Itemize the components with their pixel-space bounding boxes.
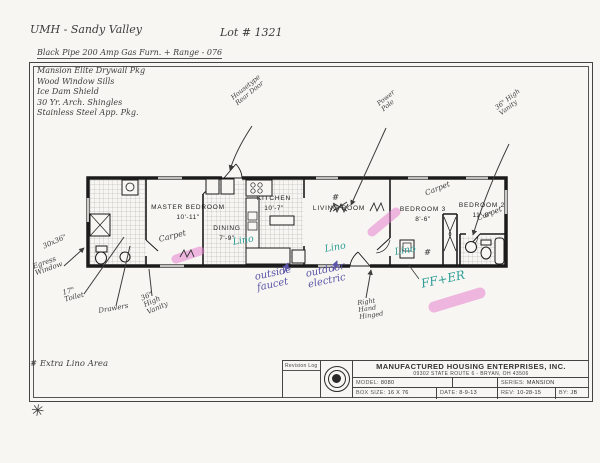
company-name: MANUFACTURED HOUSING ENTERPRISES, INC.: [353, 362, 589, 371]
room-label-kitchen: KITCHEN 10'-7": [248, 194, 300, 214]
community-note: UMH - Sandy Valley: [30, 24, 142, 36]
box-size-label: BOX SIZE:: [356, 390, 386, 396]
spec-item-shingles: 30 Yr. Arch. Shingles: [37, 99, 122, 107]
mhe-logo-core: [332, 374, 341, 383]
room-label-bedroom-3: BEDROOM 3 8'-6": [398, 205, 448, 225]
by-cell: BY:JB: [556, 388, 589, 399]
spec-item-appliance-pkg: Stainless Steel App. Pkg.: [37, 109, 139, 117]
room-size: 8'-6": [398, 215, 448, 225]
title-block: Revision Log MANUFACTURED HOUSING ENTERP…: [282, 360, 589, 398]
extra-lino-area-note: # Extra Lino Area: [30, 360, 108, 369]
date-cell: DATE:8-9-13: [437, 388, 498, 399]
title-block-row-date: BOX SIZE:16 X 76 DATE:8-9-13 REV:10-28-1…: [353, 387, 589, 399]
room-name: MASTER BEDROOM: [146, 203, 230, 213]
room-label-living-room: LIVING ROOM: [308, 204, 370, 214]
box-size-value: 16 X 76: [388, 390, 409, 396]
date-label: DATE:: [440, 390, 457, 396]
spec-item-window-sills: Wood Window Sills: [37, 78, 114, 86]
spec-item-ice-dam: Ice Dam Shield: [37, 88, 99, 96]
mhe-logo-inner-ring: [328, 370, 346, 388]
series-value: MANSION: [527, 380, 555, 386]
lot-number-note: Lot # 1321: [220, 27, 283, 39]
room-size: 10'-11": [146, 213, 230, 223]
room-label-master-bedroom: MASTER BEDROOM 10'-11": [146, 203, 230, 223]
room-name: LIVING ROOM: [308, 204, 370, 214]
series-label: SERIES:: [501, 380, 525, 386]
spec-item-drywall: Mansion Elite Drywall Pkg: [37, 67, 145, 75]
model-value: 8080: [381, 380, 394, 386]
title-block-main: MANUFACTURED HOUSING ENTERPRISES, INC. 0…: [353, 361, 589, 398]
room-name: BEDROOM 3: [398, 205, 448, 215]
rev-cell: REV:10-28-15: [498, 388, 556, 399]
by-label: BY:: [559, 390, 568, 396]
logo-cell: [321, 361, 353, 398]
revision-log-label: Revision Log: [283, 361, 320, 371]
spec-top-line: Black Pipe 200 Amp Gas Furn. + Range - 0…: [37, 49, 222, 59]
model-label: MODEL:: [356, 380, 379, 386]
revision-log-cell: Revision Log: [283, 361, 321, 398]
date-value: 8-9-13: [459, 390, 477, 396]
hash-mark-hall: #: [424, 249, 431, 258]
room-size: 10'-7": [248, 204, 300, 214]
scanned-floor-plan-page: { "header": { "community": "UMH - Sandy …: [0, 0, 600, 463]
callout-right-hand-hinged: Right Hand Hinged: [357, 297, 384, 321]
room-name: DINING: [206, 224, 248, 234]
hash-mark-living: #: [332, 194, 339, 203]
mhe-logo-icon: [324, 366, 350, 392]
box-size-cell: BOX SIZE:16 X 76: [353, 388, 437, 399]
rev-value: 10-28-15: [517, 390, 541, 396]
rev-label: REV:: [501, 390, 515, 396]
room-name: KITCHEN: [248, 194, 300, 204]
by-value: JB: [570, 390, 577, 396]
asterisk-mark: ✳: [30, 402, 46, 420]
